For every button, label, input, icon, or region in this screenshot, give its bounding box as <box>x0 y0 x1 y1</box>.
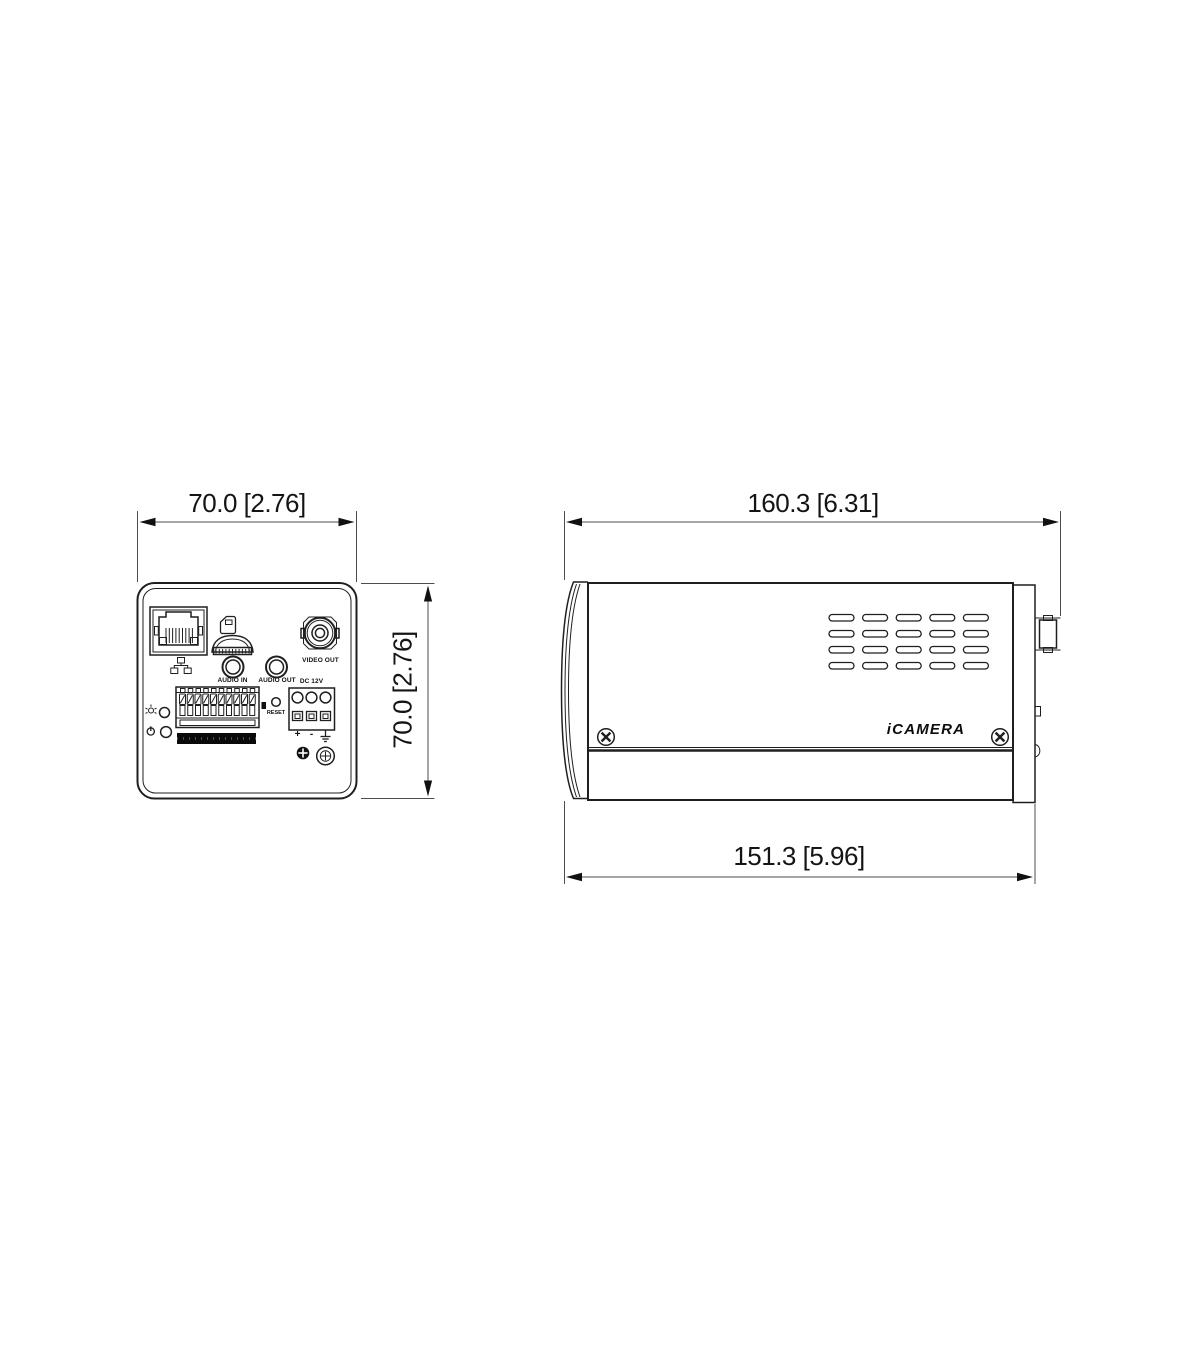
network-icon <box>171 658 191 674</box>
side-base-length-dim-text: 151.3 [5.96] <box>733 841 864 872</box>
bnc-video-connector <box>301 617 339 649</box>
plus-label: + <box>295 729 301 740</box>
side-length-dim-text: 160.3 [6.31] <box>747 488 878 519</box>
dc-power-terminal <box>289 688 335 730</box>
reset-button <box>272 698 281 707</box>
alarm-led-icon <box>146 705 157 714</box>
front-width-dim-text: 70.0 [2.76] <box>188 488 305 519</box>
sd-card-icon <box>221 617 236 634</box>
side-view <box>562 582 1061 803</box>
drawing-linework <box>0 0 1200 1372</box>
terminal-label-bar <box>177 733 256 745</box>
rj45-pins <box>166 628 192 643</box>
vent-grille <box>829 615 988 670</box>
side-screw-right <box>992 729 1009 746</box>
front-cap <box>562 582 589 799</box>
chrome-screw <box>317 747 335 765</box>
front-view <box>138 583 357 799</box>
ethernet-port <box>150 607 207 655</box>
black-screw <box>297 747 310 760</box>
dc-power-label: DC 12V <box>300 678 323 685</box>
alarm-led <box>160 708 170 718</box>
reset-label: RESET <box>267 710 285 716</box>
side-body-outline <box>588 583 1013 800</box>
audio-out-jack <box>266 657 287 678</box>
ground-icon <box>321 731 331 742</box>
dimension-drawing: 70.0 [2.76] 70.0 [2.76] 160.3 [6.31] 151… <box>0 0 1200 1372</box>
power-led <box>161 727 172 738</box>
minus-label: - <box>310 729 313 740</box>
alarm-terminal-block <box>176 687 266 728</box>
front-width-dimension <box>138 511 357 582</box>
sd-card-slot <box>212 636 253 655</box>
side-screw-left <box>598 729 615 746</box>
audio-out-label: AUDIO OUT <box>258 677 295 684</box>
rear-tab <box>1035 707 1041 717</box>
power-led-icon <box>147 726 154 735</box>
rear-panel-strip <box>1013 585 1035 803</box>
front-height-dim-text: 70.0 [2.76] <box>388 631 419 748</box>
bnc-connector-side <box>1035 616 1061 653</box>
side-total-length-dimension <box>565 511 1061 616</box>
video-out-label: VIDEO OUT <box>302 657 339 664</box>
audio-in-jack <box>223 657 244 678</box>
brand-logo: iCAMERA <box>887 721 965 738</box>
audio-in-label: AUDIO IN <box>217 677 247 684</box>
